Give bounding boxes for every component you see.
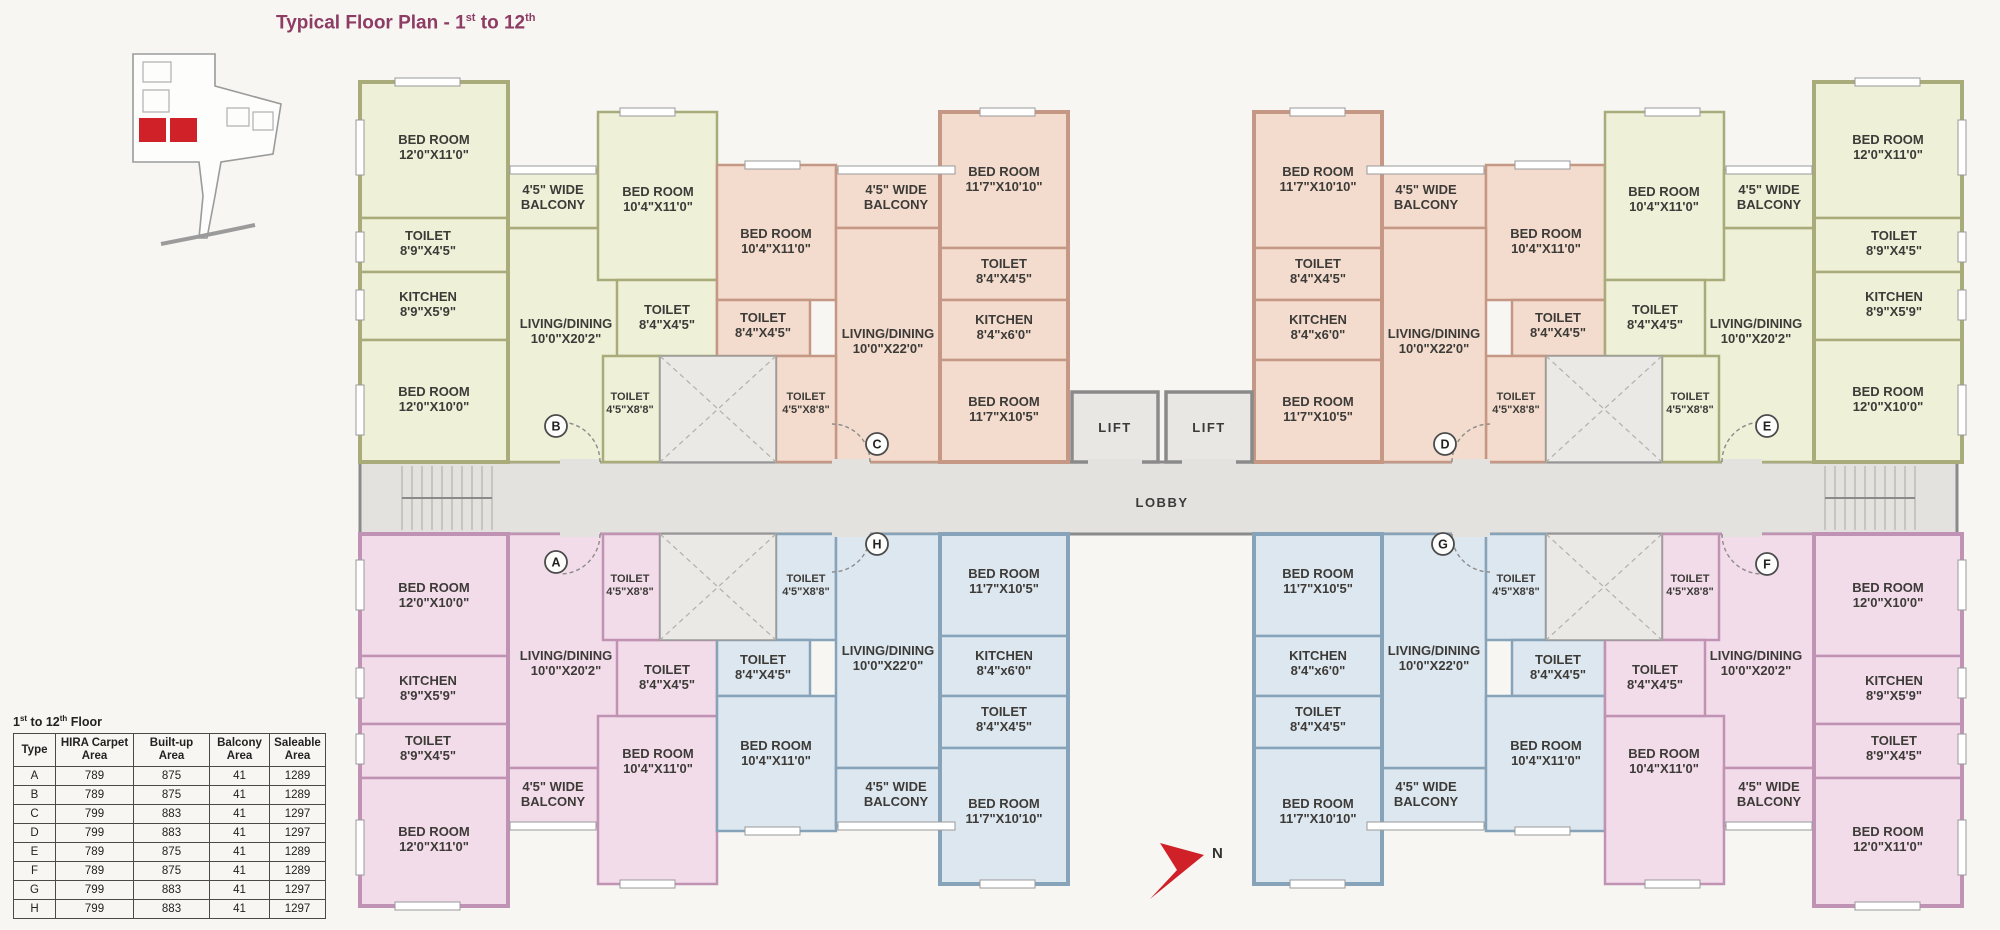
svg-text:BED ROOM10'4"X11'0": BED ROOM10'4"X11'0" — [740, 226, 812, 256]
lift-2: LIFT — [1166, 392, 1252, 465]
svg-text:BED ROOM10'4"X11'0": BED ROOM10'4"X11'0" — [622, 746, 694, 776]
room-toilet: TOILET8'4"X4'5" — [1512, 640, 1605, 696]
svg-text:TOILET4'5"X8'8": TOILET4'5"X8'8" — [782, 573, 829, 598]
svg-text:LIVING/DINING10'0"X20'2": LIVING/DINING10'0"X20'2" — [1710, 648, 1802, 678]
room-toilet: TOILET8'4"X4'5" — [940, 696, 1068, 748]
room-bedroom: BED ROOM10'4"X11'0" — [717, 165, 836, 300]
room-toilet: TOILET8'4"X4'5" — [940, 248, 1068, 300]
svg-text:4'5" WIDEBALCONY: 4'5" WIDEBALCONY — [864, 779, 929, 809]
room-bedroom: BED ROOM12'0"X11'0" — [1814, 82, 1962, 218]
svg-text:LIVING/DINING10'0"X20'2": LIVING/DINING10'0"X20'2" — [520, 648, 612, 678]
svg-text:BED ROOM12'0"X10'0": BED ROOM12'0"X10'0" — [1852, 580, 1924, 610]
svg-text:TOILET8'4"X4'5": TOILET8'4"X4'5" — [1290, 704, 1346, 734]
svg-text:LIFT: LIFT — [1192, 420, 1225, 435]
room-bedroom: BED ROOM12'0"X10'0" — [360, 534, 508, 656]
svg-text:KITCHEN8'4"x6'0": KITCHEN8'4"x6'0" — [975, 312, 1033, 342]
svg-text:BED ROOM11'7"X10'5": BED ROOM11'7"X10'5" — [968, 394, 1040, 424]
svg-text:TOILET8'4"X4'5": TOILET8'4"X4'5" — [1290, 256, 1346, 286]
room-bedroom: BED ROOM10'4"X11'0" — [717, 696, 836, 831]
table-row: E789875411289 — [14, 843, 326, 862]
table-row: F789875411289 — [14, 862, 326, 881]
svg-text:4'5" WIDEBALCONY: 4'5" WIDEBALCONY — [521, 779, 586, 809]
svg-text:LIFT: LIFT — [1098, 420, 1131, 435]
unit-circle-c: C — [866, 433, 888, 455]
room-bedroom: BED ROOM12'0"X10'0" — [1814, 340, 1962, 462]
room-bedroom: BED ROOM11'7"X10'5" — [1254, 534, 1382, 636]
svg-text:LIVING/DINING10'0"X22'0": LIVING/DINING10'0"X22'0" — [1388, 643, 1480, 673]
compass-north-label: N — [1212, 845, 1223, 862]
svg-text:BED ROOM11'7"X10'5": BED ROOM11'7"X10'5" — [1282, 566, 1354, 596]
svg-text:TOILET8'4"X4'5": TOILET8'4"X4'5" — [976, 256, 1032, 286]
table-row: A789875411289 — [14, 767, 326, 786]
room-toilet: TOILET4'5"X8'8" — [1486, 534, 1546, 640]
svg-text:A: A — [551, 556, 560, 570]
room-toilet: TOILET4'5"X8'8" — [603, 356, 660, 462]
svg-text:TOILET4'5"X8'8": TOILET4'5"X8'8" — [782, 391, 829, 416]
room-bedroom: BED ROOM10'4"X11'0" — [1605, 716, 1724, 884]
svg-text:BED ROOM11'7"X10'5": BED ROOM11'7"X10'5" — [1282, 394, 1354, 424]
svg-text:TOILET8'4"X4'5": TOILET8'4"X4'5" — [735, 310, 791, 340]
room-kitchen: KITCHEN8'4"x6'0" — [1254, 636, 1382, 696]
room-kitchen: KITCHEN8'4"x6'0" — [1254, 300, 1382, 360]
unit-circle-b: B — [545, 415, 567, 437]
svg-text:KITCHEN8'4"x6'0": KITCHEN8'4"x6'0" — [975, 648, 1033, 678]
room-toilet: TOILET8'4"X4'5" — [717, 640, 810, 696]
unit-circle-h: H — [866, 533, 888, 555]
svg-text:TOILET8'4"X4'5": TOILET8'4"X4'5" — [735, 652, 791, 682]
table-row: C799883411297 — [14, 805, 326, 824]
room-kitchen: KITCHEN8'9"X5'9" — [1814, 656, 1962, 724]
svg-text:TOILET8'9"X4'5": TOILET8'9"X4'5" — [1866, 733, 1922, 763]
svg-text:TOILET8'4"X4'5": TOILET8'4"X4'5" — [639, 662, 695, 692]
room-bedroom: BED ROOM10'4"X11'0" — [1486, 165, 1605, 300]
svg-text:BED ROOM10'4"X11'0": BED ROOM10'4"X11'0" — [1510, 226, 1582, 256]
svg-text:BED ROOM10'4"X11'0": BED ROOM10'4"X11'0" — [740, 738, 812, 768]
svg-text:TOILET4'5"X8'8": TOILET4'5"X8'8" — [1492, 573, 1539, 598]
svg-text:TOILET4'5"X8'8": TOILET4'5"X8'8" — [1666, 391, 1713, 416]
svg-text:KITCHEN8'9"X5'9": KITCHEN8'9"X5'9" — [399, 673, 457, 703]
svg-text:BED ROOM11'7"X10'10": BED ROOM11'7"X10'10" — [1279, 796, 1356, 826]
svg-text:TOILET4'5"X8'8": TOILET4'5"X8'8" — [1492, 391, 1539, 416]
svg-text:F: F — [1763, 558, 1771, 572]
svg-text:TOILET8'4"X4'5": TOILET8'4"X4'5" — [976, 704, 1032, 734]
room-toilet: TOILET8'4"X4'5" — [717, 300, 810, 356]
area-table-title: 1st to 12th Floor — [13, 714, 329, 729]
room-bedroom: BED ROOM11'7"X10'5" — [1254, 360, 1382, 462]
room-balcony: 4'5" WIDEBALCONY — [508, 768, 598, 826]
svg-text:BED ROOM12'0"X11'0": BED ROOM12'0"X11'0" — [1852, 824, 1924, 854]
area-table: 1st to 12th Floor Type HIRA Carpet Area … — [13, 714, 329, 919]
svg-text:4'5" WIDEBALCONY: 4'5" WIDEBALCONY — [1737, 779, 1802, 809]
svg-text:BED ROOM12'0"X11'0": BED ROOM12'0"X11'0" — [398, 824, 470, 854]
table-row: B789875411289 — [14, 786, 326, 805]
unit-circle-g: G — [1432, 533, 1454, 555]
svg-text:B: B — [551, 420, 560, 434]
svg-text:BED ROOM12'0"X11'0": BED ROOM12'0"X11'0" — [1852, 132, 1924, 162]
table-row: G799883411297 — [14, 881, 326, 900]
svg-text:4'5" WIDEBALCONY: 4'5" WIDEBALCONY — [521, 182, 586, 212]
room-bedroom: BED ROOM12'0"X11'0" — [360, 778, 508, 906]
svg-text:BED ROOM11'7"X10'10": BED ROOM11'7"X10'10" — [965, 164, 1042, 194]
svg-text:BED ROOM10'4"X11'0": BED ROOM10'4"X11'0" — [1628, 184, 1700, 214]
room-bedroom: BED ROOM11'7"X10'10" — [1254, 748, 1382, 884]
compass-arrow-icon — [1150, 843, 1204, 899]
svg-text:TOILET8'4"X4'5": TOILET8'4"X4'5" — [1530, 652, 1586, 682]
svg-text:KITCHEN8'9"X5'9": KITCHEN8'9"X5'9" — [1865, 673, 1923, 703]
table-row: H799883411297 — [14, 900, 326, 919]
lobby-label: LOBBY — [1136, 495, 1189, 510]
svg-text:TOILET8'9"X4'5": TOILET8'9"X4'5" — [400, 228, 456, 258]
svg-text:BED ROOM11'7"X10'10": BED ROOM11'7"X10'10" — [1279, 164, 1356, 194]
room-kitchen: KITCHEN8'4"x6'0" — [940, 636, 1068, 696]
svg-text:BED ROOM12'0"X10'0": BED ROOM12'0"X10'0" — [1852, 384, 1924, 414]
room-toilet: TOILET4'5"X8'8" — [603, 534, 660, 640]
room-toilet: TOILET8'9"X4'5" — [360, 724, 508, 778]
room-balcony: 4'5" WIDEBALCONY — [508, 170, 598, 228]
svg-text:TOILET4'5"X8'8": TOILET4'5"X8'8" — [606, 391, 653, 416]
svg-text:BED ROOM12'0"X10'0": BED ROOM12'0"X10'0" — [398, 580, 470, 610]
room-bedroom: BED ROOM12'0"X10'0" — [360, 340, 508, 462]
room-toilet: TOILET8'4"X4'5" — [1254, 696, 1382, 748]
svg-text:TOILET8'9"X4'5": TOILET8'9"X4'5" — [1866, 228, 1922, 258]
room-toilet: TOILET4'5"X8'8" — [1486, 356, 1546, 462]
svg-text:4'5" WIDEBALCONY: 4'5" WIDEBALCONY — [1737, 182, 1802, 212]
room-bedroom: BED ROOM10'4"X11'0" — [598, 716, 717, 884]
room-living-dining: LIVING/DINING10'0"X22'0" — [836, 534, 940, 768]
svg-text:4'5" WIDEBALCONY: 4'5" WIDEBALCONY — [864, 182, 929, 212]
svg-text:BED ROOM11'7"X10'10": BED ROOM11'7"X10'10" — [965, 796, 1042, 826]
room-bedroom: BED ROOM10'4"X11'0" — [598, 112, 717, 280]
svg-text:TOILET8'4"X4'5": TOILET8'4"X4'5" — [639, 302, 695, 332]
room-kitchen: KITCHEN8'9"X5'9" — [1814, 272, 1962, 340]
svg-text:TOILET8'4"X4'5": TOILET8'4"X4'5" — [1627, 302, 1683, 332]
room-toilet: TOILET4'5"X8'8" — [1662, 356, 1719, 462]
table-row: D799883411297 — [14, 824, 326, 843]
room-toilet: TOILET8'4"X4'5" — [617, 280, 717, 356]
room-toilet: TOILET8'9"X4'5" — [1814, 218, 1962, 272]
room-bedroom: BED ROOM11'7"X10'10" — [940, 112, 1068, 248]
svg-text:BED ROOM10'4"X11'0": BED ROOM10'4"X11'0" — [1510, 738, 1582, 768]
svg-text:LIVING/DINING10'0"X20'2": LIVING/DINING10'0"X20'2" — [520, 316, 612, 346]
room-toilet: TOILET4'5"X8'8" — [1662, 534, 1719, 640]
room-kitchen: KITCHEN8'4"x6'0" — [940, 300, 1068, 360]
svg-text:LIVING/DINING10'0"X20'2": LIVING/DINING10'0"X20'2" — [1710, 316, 1802, 346]
room-bedroom: BED ROOM10'4"X11'0" — [1605, 112, 1724, 280]
room-bedroom: BED ROOM12'0"X11'0" — [1814, 778, 1962, 906]
unit-circle-f: F — [1756, 553, 1778, 575]
room-living-dining: LIVING/DINING10'0"X22'0" — [1382, 228, 1486, 462]
room-bedroom: BED ROOM11'7"X10'10" — [940, 748, 1068, 884]
room-bedroom: BED ROOM10'4"X11'0" — [1486, 696, 1605, 831]
svg-text:BED ROOM12'0"X11'0": BED ROOM12'0"X11'0" — [398, 132, 470, 162]
svg-text:BED ROOM10'4"X11'0": BED ROOM10'4"X11'0" — [622, 184, 694, 214]
svg-text:KITCHEN8'9"X5'9": KITCHEN8'9"X5'9" — [399, 289, 457, 319]
room-kitchen: KITCHEN8'9"X5'9" — [360, 272, 508, 340]
room-toilet: TOILET8'4"X4'5" — [1254, 248, 1382, 300]
svg-text:KITCHEN8'4"x6'0": KITCHEN8'4"x6'0" — [1289, 312, 1347, 342]
room-kitchen: KITCHEN8'9"X5'9" — [360, 656, 508, 724]
room-toilet: TOILET8'9"X4'5" — [360, 218, 508, 272]
room-toilet: TOILET8'9"X4'5" — [1814, 724, 1962, 778]
table-header-row: Type HIRA Carpet Area Built-up Area Balc… — [14, 734, 326, 767]
svg-text:BED ROOM10'4"X11'0": BED ROOM10'4"X11'0" — [1628, 746, 1700, 776]
svg-text:TOILET4'5"X8'8": TOILET4'5"X8'8" — [1666, 573, 1713, 598]
svg-text:BED ROOM11'7"X10'5": BED ROOM11'7"X10'5" — [968, 566, 1040, 596]
svg-text:TOILET8'4"X4'5": TOILET8'4"X4'5" — [1530, 310, 1586, 340]
room-toilet: TOILET4'5"X8'8" — [776, 356, 836, 462]
compass: N — [1150, 843, 1223, 899]
unit-circle-e: E — [1756, 415, 1778, 437]
unit-circle-d: D — [1434, 433, 1456, 455]
svg-text:C: C — [872, 438, 881, 452]
svg-text:4'5" WIDEBALCONY: 4'5" WIDEBALCONY — [1394, 779, 1459, 809]
room-toilet: TOILET8'4"X4'5" — [1605, 280, 1705, 356]
svg-text:LIVING/DINING10'0"X22'0": LIVING/DINING10'0"X22'0" — [842, 326, 934, 356]
svg-text:KITCHEN8'9"X5'9": KITCHEN8'9"X5'9" — [1865, 289, 1923, 319]
svg-text:H: H — [872, 538, 881, 552]
svg-text:TOILET4'5"X8'8": TOILET4'5"X8'8" — [606, 573, 653, 598]
svg-text:E: E — [1763, 420, 1771, 434]
unit-circle-a: A — [545, 551, 567, 573]
svg-text:D: D — [1440, 438, 1449, 452]
svg-text:KITCHEN8'4"x6'0": KITCHEN8'4"x6'0" — [1289, 648, 1347, 678]
room-bedroom: BED ROOM12'0"X11'0" — [360, 82, 508, 218]
room-living-dining: LIVING/DINING10'0"X22'0" — [1382, 534, 1486, 768]
room-toilet: TOILET8'4"X4'5" — [1512, 300, 1605, 356]
room-balcony: 4'5" WIDEBALCONY — [1724, 768, 1814, 826]
room-toilet: TOILET4'5"X8'8" — [776, 534, 836, 640]
room-toilet: TOILET8'4"X4'5" — [617, 640, 717, 716]
svg-text:TOILET8'4"X4'5": TOILET8'4"X4'5" — [1627, 662, 1683, 692]
svg-text:LIVING/DINING10'0"X22'0": LIVING/DINING10'0"X22'0" — [842, 643, 934, 673]
room-living-dining: LIVING/DINING10'0"X22'0" — [836, 228, 940, 462]
room-bedroom: BED ROOM11'7"X10'10" — [1254, 112, 1382, 248]
room-bedroom: BED ROOM12'0"X10'0" — [1814, 534, 1962, 656]
svg-text:BED ROOM12'0"X10'0": BED ROOM12'0"X10'0" — [398, 384, 470, 414]
lift-1: LIFT — [1072, 392, 1158, 465]
room-toilet: TOILET8'4"X4'5" — [1605, 640, 1705, 716]
room-balcony: 4'5" WIDEBALCONY — [1724, 170, 1814, 228]
svg-text:LIVING/DINING10'0"X22'0": LIVING/DINING10'0"X22'0" — [1388, 326, 1480, 356]
room-bedroom: BED ROOM11'7"X10'5" — [940, 534, 1068, 636]
svg-text:4'5" WIDEBALCONY: 4'5" WIDEBALCONY — [1394, 182, 1459, 212]
svg-text:TOILET8'9"X4'5": TOILET8'9"X4'5" — [400, 733, 456, 763]
room-bedroom: BED ROOM11'7"X10'5" — [940, 360, 1068, 462]
svg-text:G: G — [1438, 538, 1448, 552]
